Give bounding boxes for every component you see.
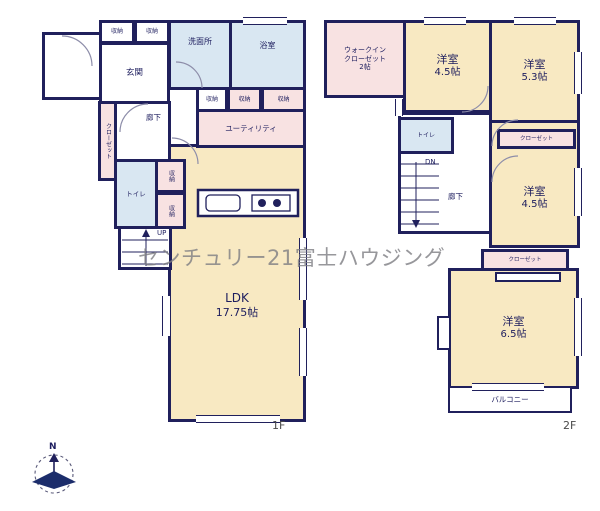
room-western-2: 洋室 5.3帖	[489, 20, 580, 123]
floor1-label: 1F	[272, 419, 285, 432]
ldk-name: LDK	[216, 291, 259, 306]
window	[574, 52, 582, 94]
window	[472, 383, 544, 391]
room-label: クローゼット	[508, 257, 541, 264]
room-western-1: 洋室 4.5帖	[403, 20, 492, 113]
room-ldk: LDK 17.75帖	[168, 144, 306, 422]
room-hallway-1f: 廊下	[114, 101, 171, 162]
room-washroom: 洗面所	[168, 20, 232, 90]
room-label: 収納	[238, 96, 250, 104]
stairs-up-label: UP	[157, 229, 166, 237]
room-toilet-2f: トイレ	[398, 117, 454, 154]
room1-name: 洋室	[435, 53, 461, 67]
compass-icon	[32, 453, 76, 493]
window	[299, 328, 307, 376]
window	[514, 17, 556, 25]
floor2-label: 2F	[563, 419, 576, 432]
room-label: トイレ	[417, 132, 435, 140]
room-label: 収納	[206, 96, 218, 104]
closet-door	[495, 272, 561, 282]
room-label: 浴室	[260, 41, 276, 51]
compass-north-label: N	[49, 442, 57, 452]
room-label: バルコニー	[491, 395, 528, 404]
room-porch	[42, 32, 102, 100]
hallway-2f-label: 廊下	[448, 191, 463, 202]
window	[424, 17, 466, 25]
room2-size: 5.3帖	[522, 72, 548, 85]
window	[574, 298, 582, 356]
room-western-4: 洋室 6.5帖	[448, 268, 579, 389]
room-storage-hall-1: 収納	[155, 159, 186, 193]
room-label: 洋室 4.5帖	[522, 185, 548, 211]
window	[574, 168, 582, 216]
room-genkan: 玄関	[99, 42, 170, 104]
wic-size: 2帖	[344, 63, 386, 72]
room-toilet-1f: トイレ	[114, 159, 158, 229]
room-label: クローゼット	[105, 123, 111, 159]
room-label: 洋室 4.5帖	[435, 53, 461, 79]
room-label: 洋室 6.5帖	[501, 315, 527, 341]
window	[243, 17, 287, 25]
room-utility: ユーティリティ	[196, 109, 306, 148]
room-label: 洋室 5.3帖	[522, 58, 548, 84]
room-label: 洗面所	[188, 37, 212, 47]
room-label: ユーティリティ	[225, 124, 277, 133]
floor-plan: 収納 収納 玄関 洗面所 浴室 LDK 17.75帖 収納 収納 収納 ユーティ…	[0, 0, 600, 511]
room1-size: 4.5帖	[435, 67, 461, 80]
wic-line1: ウォークイン	[344, 46, 386, 55]
room-label: 収納	[168, 170, 174, 182]
ldk-size: 17.75帖	[216, 306, 259, 320]
room-closet-2f-a: クローゼット	[497, 129, 576, 149]
room-bathroom: 浴室	[229, 20, 306, 90]
room-storage-hall-2: 収納	[155, 192, 186, 229]
window	[299, 238, 307, 300]
room4-size: 6.5帖	[501, 329, 527, 342]
room-label: 収納	[111, 28, 123, 36]
stairs-down-label: DN	[425, 158, 436, 166]
room-label: 収納	[146, 28, 158, 36]
room2-name: 洋室	[522, 58, 548, 72]
room-storage-genkan-2: 収納	[134, 20, 170, 44]
window	[395, 99, 403, 116]
room-label: 収納	[168, 205, 174, 217]
room-label: ウォークイン クローゼット 2帖	[344, 46, 386, 72]
room3-name: 洋室	[522, 185, 548, 199]
window	[196, 415, 280, 423]
room-label: 収納	[277, 96, 289, 104]
room-storage-genkan-1: 収納	[99, 20, 135, 44]
room-label: トイレ	[126, 190, 146, 198]
room4-name: 洋室	[501, 315, 527, 329]
room-label: 廊下	[146, 113, 161, 122]
room3-size: 4.5帖	[522, 199, 548, 212]
window-bay	[437, 316, 451, 350]
room-label: 玄関	[126, 68, 143, 79]
room-label: クローゼット	[520, 136, 553, 143]
window	[162, 296, 171, 336]
room-label: LDK 17.75帖	[216, 291, 259, 320]
room-wic: ウォークイン クローゼット 2帖	[324, 20, 406, 98]
